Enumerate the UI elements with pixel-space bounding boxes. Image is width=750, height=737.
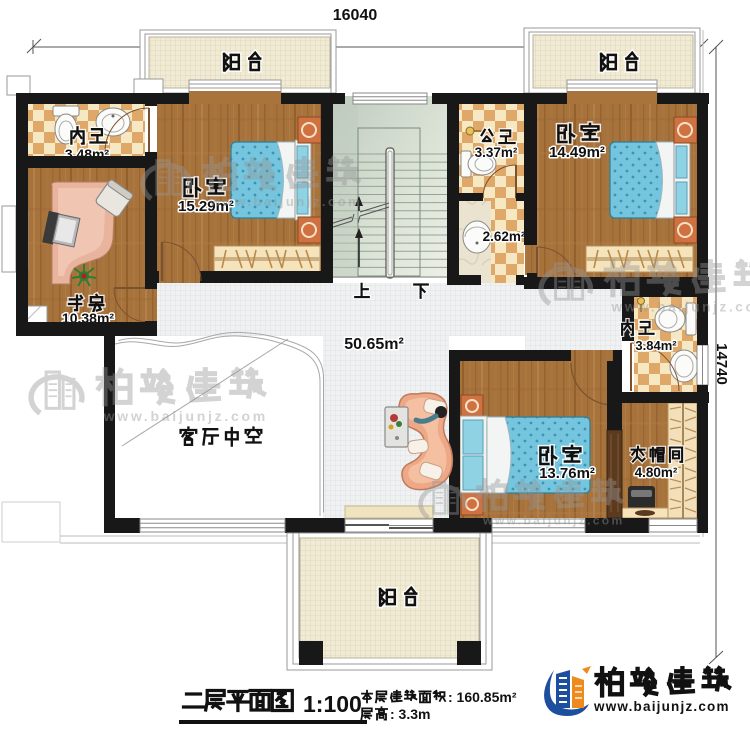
- svg-text:16040: 16040: [333, 7, 378, 24]
- svg-text:50.65m²: 50.65m²: [344, 336, 404, 353]
- svg-text:www.baijunjz.com: www.baijunjz.com: [482, 513, 624, 527]
- svg-text:: 3.3m: : 3.3m: [390, 706, 430, 722]
- svg-text:1:100: 1:100: [303, 691, 362, 717]
- svg-text:13.76m²: 13.76m²: [539, 465, 595, 482]
- svg-text:: 160.85m²: : 160.85m²: [448, 689, 517, 705]
- svg-text:3.37m²: 3.37m²: [475, 145, 518, 160]
- svg-text:www.baijunjz.com: www.baijunjz.com: [103, 408, 268, 424]
- svg-text:4.80m²: 4.80m²: [635, 465, 678, 480]
- svg-text:www.baijunjz.com: www.baijunjz.com: [593, 699, 730, 714]
- svg-text:www.baijunjz.com: www.baijunjz.com: [611, 300, 750, 315]
- svg-text:2.62m²: 2.62m²: [483, 229, 526, 244]
- svg-text:14740: 14740: [713, 343, 730, 385]
- svg-text:3.84m²: 3.84m²: [635, 338, 677, 353]
- svg-text:www.baijunjz.com: www.baijunjz.com: [209, 194, 362, 209]
- svg-text:14.49m²: 14.49m²: [549, 144, 605, 161]
